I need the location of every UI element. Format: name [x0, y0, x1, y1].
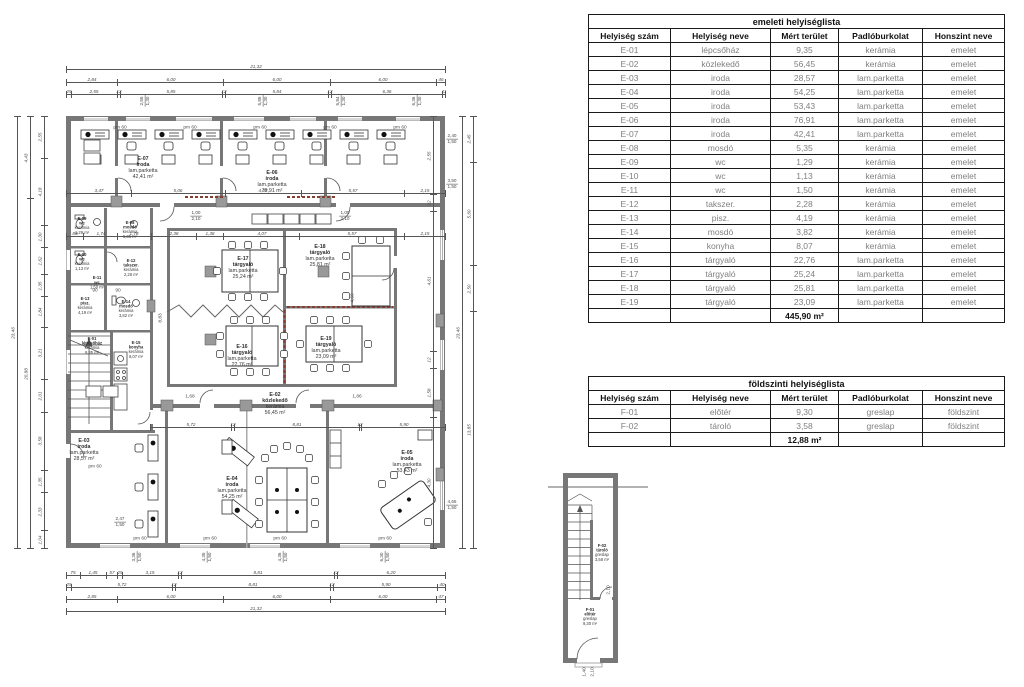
- emeleti-cell: E-16: [589, 253, 671, 267]
- emeleti-cell: Padlóburkolat: [839, 29, 923, 43]
- emeleti-cell: E-12: [589, 197, 671, 211]
- meeting-table-e19: [297, 317, 372, 372]
- emeleti-cell: E-14: [589, 225, 671, 239]
- workstations-e04: [222, 437, 258, 527]
- emeleti-cell: E-04: [589, 85, 671, 99]
- emeleti-cell: emelet: [923, 253, 1005, 267]
- emeleti-cell: E-17: [589, 267, 671, 281]
- executive-desk-e05: [379, 430, 437, 531]
- emeleti-cell: 53,43: [771, 99, 839, 113]
- emeleti-cell: 8,07: [771, 239, 839, 253]
- emeleti-cell: 22,76: [771, 253, 839, 267]
- emeleti-cell: emelet: [923, 197, 1005, 211]
- emeleti-cell: iroda: [671, 85, 771, 99]
- emeleti-cell: lam.parketta: [839, 99, 923, 113]
- foldszinti-cell: [589, 433, 671, 447]
- emeleti-cell: konyha: [671, 239, 771, 253]
- emeleti-cell: 445,90 m²: [771, 309, 839, 323]
- emeleti-cell: E-02: [589, 57, 671, 71]
- emeleti-cell: emelet: [923, 71, 1005, 85]
- emeleti-cell: lam.parketta: [839, 281, 923, 295]
- emeleti-cell: 3,82: [771, 225, 839, 239]
- emeleti-cell: mosdó: [671, 225, 771, 239]
- meeting-table-e18: [343, 237, 391, 307]
- emeleti-cell: lam.parketta: [839, 85, 923, 99]
- emeleti-cell: iroda: [671, 113, 771, 127]
- emeleti-cell: 42,41: [771, 127, 839, 141]
- foldszinti-cell: [923, 433, 1005, 447]
- emeleti-cell: takszer.: [671, 197, 771, 211]
- emeleti-cell: 23,09: [771, 295, 839, 309]
- emeleti-cell: tárgyaló: [671, 281, 771, 295]
- emeleti-cell: 28,57: [771, 71, 839, 85]
- emeleti-cell: emelet: [923, 43, 1005, 57]
- emeleti-cell: 56,45: [771, 57, 839, 71]
- emeleti-cell: [589, 309, 671, 323]
- workstations-bottom-left: [135, 435, 158, 537]
- foldszinti-cell: greslap: [839, 419, 923, 433]
- emeleti-cell: emelet: [923, 169, 1005, 183]
- emeleti-cell: 25,81: [771, 281, 839, 295]
- emeleti-cell: E-05: [589, 99, 671, 113]
- emeleti-cell: lam.parketta: [839, 113, 923, 127]
- emeleti-cell: emelet: [923, 225, 1005, 239]
- emeleti-cell: mosdó: [671, 141, 771, 155]
- foldszinti-cell: Padlóburkolat: [839, 391, 923, 405]
- emeleti-cell: E-09: [589, 155, 671, 169]
- meeting-table-e17: [214, 242, 287, 301]
- emeleti-cell: kerámia: [839, 239, 923, 253]
- foldszinti-cell: Honszint neve: [923, 391, 1005, 405]
- emeleti-cell: E-19: [589, 295, 671, 309]
- emeleti-cell: 9,35: [771, 43, 839, 57]
- upstairs-room-list: emeleti helyiséglistaHelyiség számHelyis…: [588, 14, 1005, 323]
- groundfloor-room-list: földszinti helyiséglistaHelyiség számHel…: [588, 376, 1005, 447]
- room-list-tables: emeleti helyiséglistaHelyiség számHelyis…: [588, 14, 1005, 447]
- staircase: [68, 336, 110, 424]
- emeleti-cell: E-08: [589, 141, 671, 155]
- emeleti-cell: Helyiség neve: [671, 29, 771, 43]
- foldszinti-cell: földszint: [923, 419, 1005, 433]
- emeleti-cell: emelet: [923, 183, 1005, 197]
- foldszinti-cell: 12,88 m²: [771, 433, 839, 447]
- emeleti-cell: wc: [671, 155, 771, 169]
- emeleti-cell: E-10: [589, 169, 671, 183]
- emeleti-cell: Mért terület: [771, 29, 839, 43]
- emeleti-cell: tárgyaló: [671, 267, 771, 281]
- emeleti-cell: 1,50: [771, 183, 839, 197]
- meeting-table-e16: [217, 317, 288, 376]
- emeleti-cell: 54,25: [771, 85, 839, 99]
- emeleti-cell: 2,28: [771, 197, 839, 211]
- emeleti-cell: emelet: [923, 211, 1005, 225]
- emeleti-cell: [839, 309, 923, 323]
- emeleti-cell: 76,91: [771, 113, 839, 127]
- emeleti-cell: tárgyaló: [671, 253, 771, 267]
- emeleti-cell: wc: [671, 183, 771, 197]
- emeleti-cell: E-07: [589, 127, 671, 141]
- emeleti-cell: kerámia: [839, 225, 923, 239]
- cad-floorplan-viewer: E-07irodalam.parketta42,41 m²E-06irodala…: [0, 0, 1024, 687]
- emeleti-cell: emelet: [923, 85, 1005, 99]
- emeleti-cell: 5,35: [771, 141, 839, 155]
- foldszinti-table: földszinti helyiséglistaHelyiség számHel…: [588, 376, 1005, 447]
- emeleti-cell: 4,19: [771, 211, 839, 225]
- emeleti-cell: iroda: [671, 127, 771, 141]
- emeleti-cell: kerámia: [839, 183, 923, 197]
- foldszinti-cell: greslap: [839, 405, 923, 419]
- emeleti-cell: emelet: [923, 267, 1005, 281]
- emeleti-cell: lam.parketta: [839, 127, 923, 141]
- emeleti-cell: Honszint neve: [923, 29, 1005, 43]
- foldszinti-cell: Helyiség szám: [589, 391, 671, 405]
- emeleti-cell: emelet: [923, 155, 1005, 169]
- emeleti-cell: emelet: [923, 57, 1005, 71]
- emeleti-cell: kerámia: [839, 169, 923, 183]
- emeleti-cell: 1,29: [771, 155, 839, 169]
- workstations-top: [81, 130, 405, 164]
- emeleti-cell: tárgyaló: [671, 295, 771, 309]
- foldszinti-cell: F-01: [589, 405, 671, 419]
- emeleti-cell: lam.parketta: [839, 295, 923, 309]
- foldszinti-cell: 3,58: [771, 419, 839, 433]
- emeleti-cell: emelet: [923, 113, 1005, 127]
- emeleti-cell: emelet: [923, 281, 1005, 295]
- emeleti-cell: wc: [671, 169, 771, 183]
- emeleti-cell: E-11: [589, 183, 671, 197]
- emeleti-cell: lépcsőház: [671, 43, 771, 57]
- emeleti-cell: kerámia: [839, 57, 923, 71]
- emeleti-cell: Helyiség szám: [589, 29, 671, 43]
- emeleti-cell: 1,13: [771, 169, 839, 183]
- foldszinti-cell: előtér: [671, 405, 771, 419]
- emeleti-cell: iroda: [671, 99, 771, 113]
- foldszinti-cell: földszint: [923, 405, 1005, 419]
- emeleti-cell: iroda: [671, 71, 771, 85]
- emeleti-cell: emelet: [923, 127, 1005, 141]
- emeleti-cell: pisz.: [671, 211, 771, 225]
- foldszinti-cell: földszinti helyiséglista: [589, 377, 1005, 391]
- emeleti-cell: emelet: [923, 141, 1005, 155]
- emeleti-cell: E-03: [589, 71, 671, 85]
- emeleti-cell: emelet: [923, 295, 1005, 309]
- emeleti-cell: [923, 309, 1005, 323]
- emeleti-cell: kerámia: [839, 155, 923, 169]
- ground-floor-plan: [548, 473, 648, 667]
- sanitary-fixtures: [75, 215, 140, 307]
- foldszinti-cell: [839, 433, 923, 447]
- foldszinti-cell: Helyiség neve: [671, 391, 771, 405]
- emeleti-cell: [671, 309, 771, 323]
- emeleti-cell: kerámia: [839, 211, 923, 225]
- emeleti-cell: lam.parketta: [839, 267, 923, 281]
- emeleti-cell: 25,24: [771, 267, 839, 281]
- foldszinti-cell: Mért terület: [771, 391, 839, 405]
- emeleti-cell: lam.parketta: [839, 71, 923, 85]
- emeleti-cell: E-18: [589, 281, 671, 295]
- foldszinti-cell: F-02: [589, 419, 671, 433]
- emeleti-cell: emelet: [923, 99, 1005, 113]
- foldszinti-cell: 9,30: [771, 405, 839, 419]
- emeleti-cell: közlekedő: [671, 57, 771, 71]
- emeleti-cell: lam.parketta: [839, 253, 923, 267]
- emeleti-cell: E-01: [589, 43, 671, 57]
- emeleti-cell: kerámia: [839, 43, 923, 57]
- emeleti-cell: E-13: [589, 211, 671, 225]
- foldszinti-cell: tároló: [671, 419, 771, 433]
- emeleti-cell: E-06: [589, 113, 671, 127]
- kitchen-fixtures: [114, 352, 127, 410]
- emeleti-table: emeleti helyiséglistaHelyiség számHelyis…: [588, 14, 1005, 323]
- foldszinti-cell: [671, 433, 771, 447]
- emeleti-cell: E-15: [589, 239, 671, 253]
- emeleti-cell: kerámia: [839, 141, 923, 155]
- emeleti-cell: emelet: [923, 239, 1005, 253]
- conference-setup-e04: [256, 443, 319, 533]
- emeleti-cell: kerámia: [839, 197, 923, 211]
- emeleti-cell: emeleti helyiséglista: [589, 15, 1005, 29]
